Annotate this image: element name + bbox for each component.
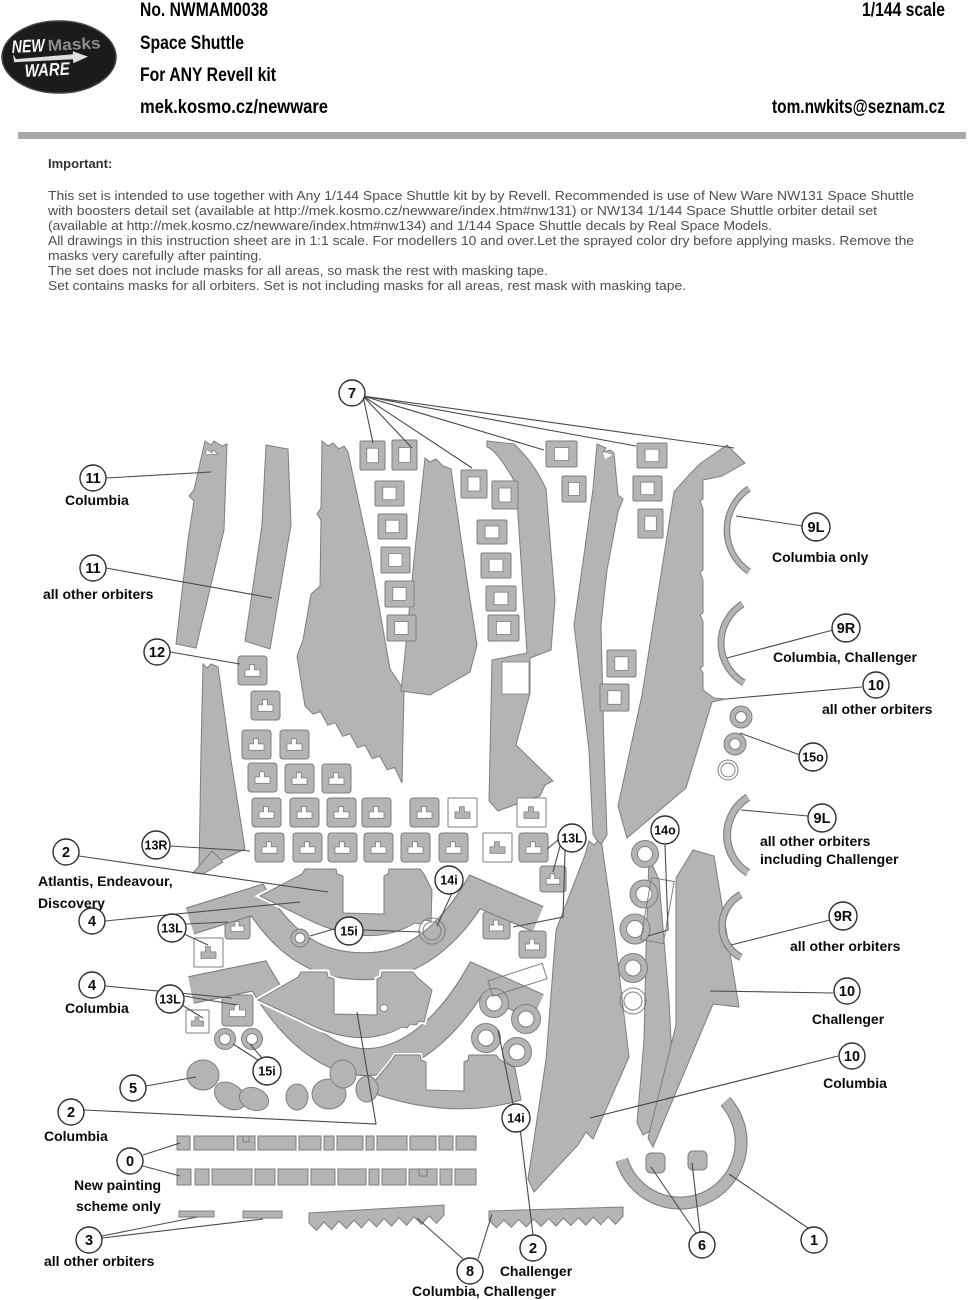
- svg-text:9L: 9L: [808, 520, 825, 536]
- svg-text:all other orbiters: all other orbiters: [44, 1253, 155, 1269]
- svg-text:including Challenger: including Challenger: [760, 851, 899, 867]
- svg-text:5: 5: [129, 1081, 137, 1097]
- svg-text:10: 10: [839, 984, 855, 1000]
- svg-text:Columbia: Columbia: [65, 1000, 129, 1016]
- svg-text:14i: 14i: [440, 874, 457, 888]
- svg-text:13L: 13L: [561, 832, 583, 846]
- svg-text:mek.kosmo.cz/newware: mek.kosmo.cz/newware: [140, 97, 328, 118]
- svg-text:Columbia only: Columbia only: [772, 549, 869, 565]
- svg-text:Atlantis, Endeavour,: Atlantis, Endeavour,: [38, 873, 173, 889]
- svg-text:The set does not include masks: The set does not include masks for all a…: [48, 264, 548, 278]
- svg-text:Space Shuttle: Space Shuttle: [140, 33, 244, 54]
- svg-text:1/144 scale: 1/144 scale: [862, 0, 945, 21]
- svg-text:13L: 13L: [159, 993, 181, 1007]
- svg-text:This set is intended to use to: This set is intended to use together wit…: [48, 189, 914, 203]
- svg-text:all other orbiters: all other orbiters: [790, 938, 901, 954]
- svg-text:8: 8: [466, 1264, 474, 1280]
- svg-text:(available at http://mek.kosmo: (available at http://mek.kosmo.cz/newwar…: [48, 219, 772, 233]
- svg-text:Columbia: Columbia: [823, 1075, 887, 1091]
- svg-text:For ANY Revell kit: For ANY Revell kit: [140, 65, 277, 86]
- svg-text:scheme only: scheme only: [76, 1198, 161, 1214]
- svg-text:4: 4: [88, 978, 96, 994]
- svg-text:WARE: WARE: [24, 59, 71, 81]
- svg-text:2: 2: [67, 1105, 75, 1121]
- svg-text:Challenger: Challenger: [812, 1011, 885, 1027]
- svg-text:13L: 13L: [161, 922, 183, 936]
- svg-text:11: 11: [85, 471, 100, 487]
- svg-text:10: 10: [868, 678, 884, 694]
- svg-text:masks very carefully after pai: masks very carefully after painting.: [48, 249, 262, 263]
- svg-text:Columbia, Challenger: Columbia, Challenger: [773, 649, 917, 665]
- svg-text:Columbia: Columbia: [44, 1128, 108, 1144]
- svg-text:9L: 9L: [814, 811, 831, 827]
- svg-text:No. NWMAM0038: No. NWMAM0038: [140, 0, 268, 21]
- svg-text:Set contains masks for all orb: Set contains masks for all orbiters. Set…: [48, 279, 686, 293]
- svg-text:all other orbiters: all other orbiters: [760, 833, 871, 849]
- svg-text:15i: 15i: [258, 1065, 275, 1079]
- svg-text:14o: 14o: [654, 824, 676, 838]
- svg-text:10: 10: [844, 1049, 860, 1065]
- svg-text:all other orbiters: all other orbiters: [43, 586, 154, 602]
- svg-text:14i: 14i: [507, 1112, 524, 1126]
- svg-text:6: 6: [698, 1238, 706, 1254]
- svg-text:13R: 13R: [145, 839, 168, 853]
- svg-text:New painting: New painting: [74, 1177, 161, 1193]
- svg-text:Important:: Important:: [48, 156, 112, 171]
- svg-text:Columbia: Columbia: [65, 492, 129, 508]
- svg-text:with boosters detail set (avai: with boosters detail set (available at h…: [47, 204, 878, 218]
- svg-text:Challenger: Challenger: [500, 1263, 573, 1279]
- svg-text:12: 12: [149, 645, 165, 661]
- svg-text:11: 11: [85, 561, 100, 577]
- svg-text:15o: 15o: [802, 751, 824, 765]
- svg-text:2: 2: [529, 1241, 537, 1257]
- svg-text:3: 3: [85, 1233, 93, 1249]
- svg-text:9R: 9R: [837, 621, 856, 637]
- svg-text:9R: 9R: [834, 909, 853, 925]
- svg-text:2: 2: [62, 845, 70, 861]
- svg-text:1: 1: [810, 1233, 818, 1249]
- svg-text:4: 4: [88, 914, 96, 930]
- svg-text:0: 0: [126, 1154, 134, 1170]
- svg-text:Columbia, Challenger: Columbia, Challenger: [412, 1283, 556, 1299]
- svg-text:7: 7: [348, 386, 356, 402]
- svg-text:NEW: NEW: [11, 35, 47, 57]
- svg-text:all other orbiters: all other orbiters: [822, 701, 933, 717]
- svg-text:tom.nwkits@seznam.cz: tom.nwkits@seznam.cz: [772, 97, 945, 118]
- svg-text:15i: 15i: [340, 925, 357, 939]
- svg-text:All drawings in this instructi: All drawings in this instruction sheet a…: [48, 234, 914, 248]
